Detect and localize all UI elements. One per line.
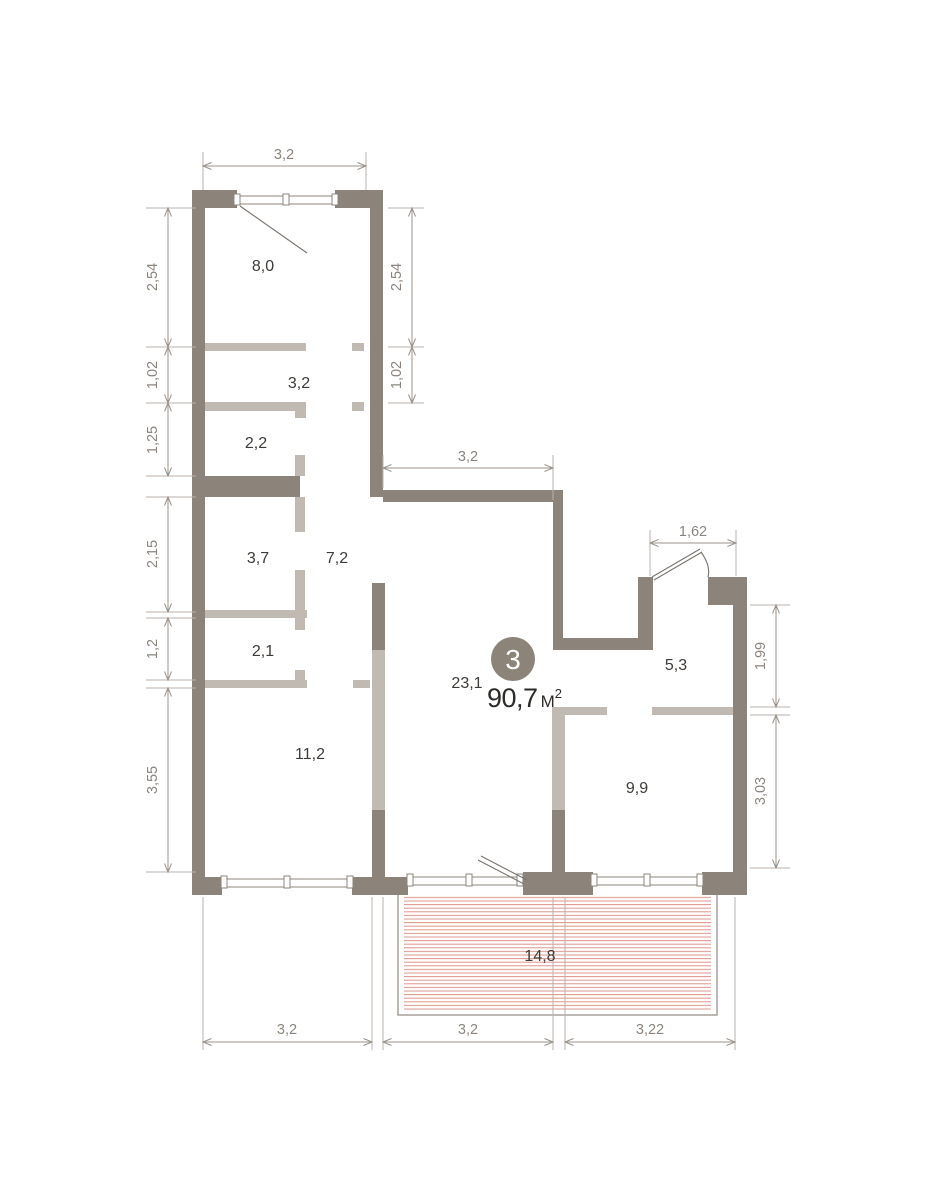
wall-segment [372, 583, 385, 650]
unit-badge: 3 [491, 637, 535, 681]
wall-segment [192, 208, 205, 895]
window-post [347, 876, 353, 888]
window-top [234, 190, 338, 208]
dim-label: 1,99 [753, 642, 769, 670]
window-post [283, 194, 289, 205]
window-balcony-left [407, 873, 523, 895]
window-post [407, 874, 413, 886]
window-swing-line [240, 206, 307, 253]
wall-segment [335, 190, 383, 208]
partition-segment [205, 402, 306, 411]
balcony-platform [398, 890, 717, 1015]
partition-segment [205, 680, 307, 688]
window-balcony-right [591, 873, 703, 895]
room-label-3-7: 3,7 [247, 550, 269, 567]
wall-segment [708, 577, 747, 605]
room-label-2-1: 2,1 [252, 643, 274, 660]
dim-label: 3,2 [458, 1022, 478, 1038]
partition-segment [295, 455, 305, 476]
wall-segment [383, 490, 563, 502]
total-area-label: 90,7М2 [487, 683, 562, 713]
window-post [466, 874, 472, 886]
wall-segment [352, 877, 408, 895]
window-post [697, 874, 703, 886]
room-label-9-9: 9,9 [626, 780, 648, 797]
room-label-14-8: 14,8 [524, 948, 555, 965]
entrance-door-arc [701, 552, 709, 577]
partition-segment [295, 411, 306, 418]
partition-segment [652, 707, 733, 715]
dimension-top: 3,2 [203, 147, 366, 190]
wall-segment [192, 190, 237, 208]
dimension-inner-right-column: 2,54 1,02 [388, 208, 424, 403]
room-label-5-3: 5,3 [665, 657, 687, 674]
dim-label: 1,2 [145, 639, 161, 659]
dim-label: 3,03 [753, 777, 769, 805]
wall-segment [370, 208, 383, 497]
window-post [644, 874, 650, 886]
unit-number: 3 [505, 644, 521, 675]
wall-segment [702, 872, 747, 895]
wall-segment [192, 877, 222, 895]
partition-segment [353, 680, 370, 688]
window-post [234, 194, 240, 205]
dim-label: 2,54 [389, 263, 405, 291]
partition-segment [552, 707, 607, 715]
entrance-door-leaf [654, 552, 702, 580]
window-post [332, 194, 338, 205]
wall-segment [552, 810, 565, 872]
wall-segment [192, 476, 300, 497]
partition-segment [205, 610, 307, 618]
wall-segment [733, 605, 747, 895]
window-post [221, 876, 227, 888]
room-label-23-1: 23,1 [451, 675, 482, 692]
window-post [284, 876, 290, 888]
dimension-entrance: 1,62 [650, 524, 736, 576]
window-post [591, 874, 597, 886]
partition-segment [205, 343, 306, 351]
partition-segment [352, 402, 364, 411]
partition-segment [295, 497, 305, 532]
dim-label: 1,62 [679, 524, 707, 540]
balcony-hatch [404, 894, 711, 1010]
wall-segment [553, 502, 563, 650]
room-label-2-2: 2,2 [245, 435, 267, 452]
partition-segment [295, 570, 305, 630]
floor-plan-page: 3,2 2,54 1,02 1,25 2,15 1,2 3,55 2,54 1,… [0, 0, 933, 1200]
dim-label: 3,22 [636, 1022, 664, 1038]
entrance-door-leaf [652, 549, 700, 577]
dim-label: 2,54 [145, 263, 161, 291]
dimension-left-column: 2,54 1,02 1,25 2,15 1,2 3,55 [145, 208, 196, 872]
partition-segment [552, 707, 565, 810]
partition-segment [352, 343, 364, 351]
room-labels: 8,0 3,2 2,2 3,7 7,2 2,1 11,2 23,1 5,3 9,… [245, 258, 687, 965]
room-label-11-2: 11,2 [295, 746, 325, 763]
wall-segment [523, 872, 593, 895]
dim-label: 1,02 [389, 361, 405, 389]
partition-segment [372, 650, 385, 810]
room-label-7-2: 7,2 [326, 550, 348, 567]
room-label-8-0: 8,0 [252, 258, 274, 275]
dim-label: 2,15 [145, 540, 161, 568]
total-area-unit: М [541, 692, 555, 711]
window-bottom-left [221, 876, 353, 895]
room-label-3-2: 3,2 [288, 375, 310, 392]
total-area-value: 90,7 [487, 683, 538, 713]
dimension-right-column: 1,99 3,03 [750, 605, 790, 868]
dim-label: 3,55 [145, 766, 161, 794]
dim-label: 3,2 [458, 449, 478, 465]
wall-segment [638, 577, 653, 650]
dim-label: 3,2 [274, 147, 294, 163]
floor-plan-drawing: 3,2 2,54 1,02 1,25 2,15 1,2 3,55 2,54 1,… [0, 0, 933, 1200]
dim-label: 3,2 [277, 1022, 297, 1038]
total-area-superscript: 2 [555, 686, 562, 701]
dim-label: 1,25 [145, 426, 161, 454]
dim-label: 1,02 [145, 361, 161, 389]
